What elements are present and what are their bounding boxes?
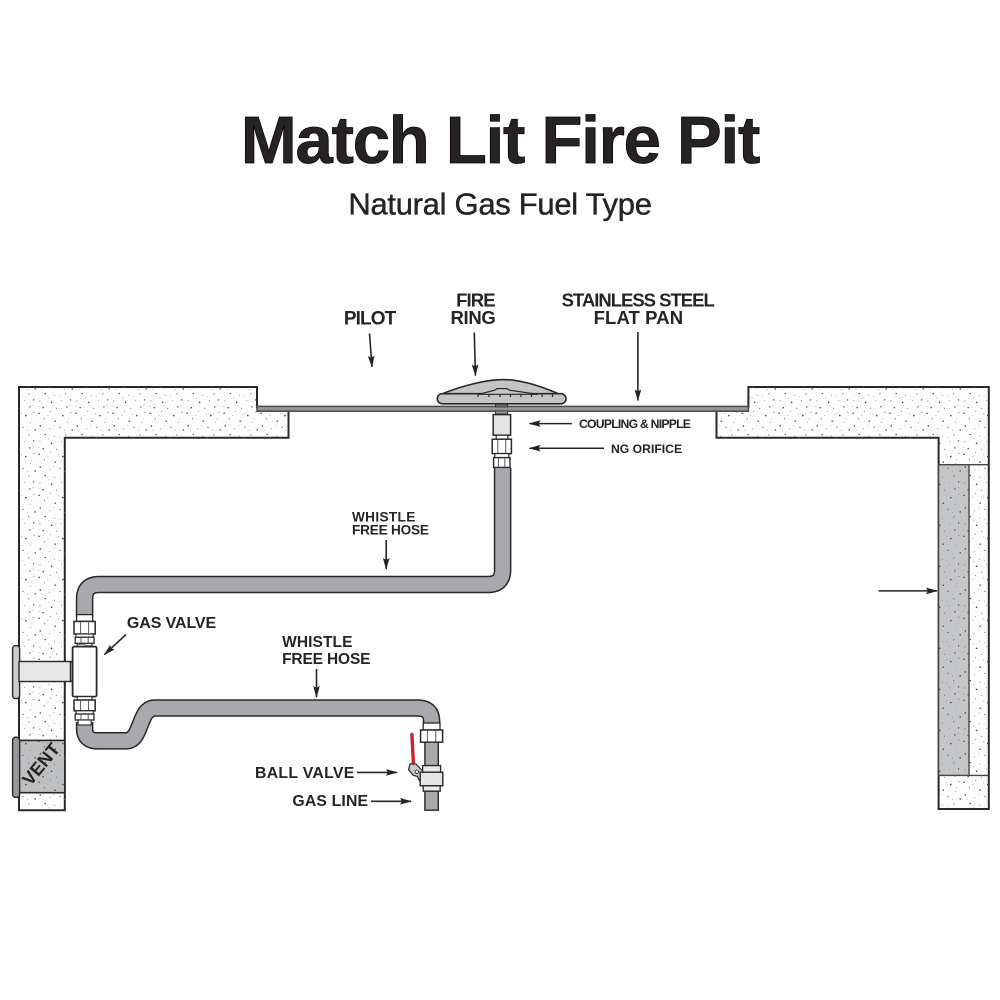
svg-text:RING: RING [450,307,495,328]
svg-text:FLAT PAN: FLAT PAN [594,307,684,328]
svg-text:Natural Gas Fuel Type: Natural Gas Fuel Type [348,187,651,222]
svg-text:PILOT: PILOT [344,308,397,329]
svg-text:Match Lit Fire Pit: Match Lit Fire Pit [241,103,760,178]
svg-text:GAS VALVE: GAS VALVE [127,615,217,632]
svg-text:FREE HOSE: FREE HOSE [352,522,429,537]
svg-text:COUPLING & NIPPLE: COUPLING & NIPPLE [579,417,691,431]
svg-text:WHISTLE: WHISTLE [282,634,352,651]
svg-text:BALL VALVE: BALL VALVE [255,765,355,782]
svg-text:NG ORIFICE: NG ORIFICE [611,442,682,456]
svg-text:FREE HOSE: FREE HOSE [282,651,370,668]
svg-text:GAS LINE: GAS LINE [292,793,368,810]
